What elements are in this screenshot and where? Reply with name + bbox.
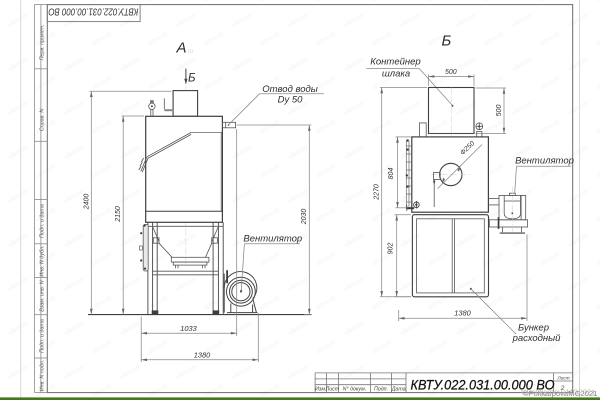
svg-text:Подп. и дата: Подп. и дата [40,319,46,353]
svg-text:Вентилятор: Вентилятор [243,233,302,244]
svg-text:2030: 2030 [301,209,308,226]
svg-text:1380: 1380 [454,309,471,318]
svg-text:Инв. N дубл.: Инв. N дубл. [40,245,46,276]
svg-text:Перв. примен.: Перв. примен. [40,25,46,61]
svg-text:Б: Б [188,73,196,85]
svg-text:1033: 1033 [180,324,197,333]
svg-text:2400: 2400 [83,194,90,211]
svg-text:2270: 2270 [373,184,380,201]
svg-text:КВТУ.022.031.00.000 ВО: КВТУ.022.031.00.000 ВО [48,6,138,17]
svg-text:(1): (1) [188,49,194,54]
svg-text:Справ. N: Справ. N [40,109,46,132]
svg-text:Dy 50: Dy 50 [278,94,304,105]
svg-text:500: 500 [496,105,503,117]
svg-text:Дата: Дата [391,387,406,393]
svg-text:Вентилятор: Вентилятор [515,156,574,167]
svg-text:шлака: шлака [382,68,410,79]
svg-text:1380: 1380 [194,351,211,360]
svg-text:Контейнер: Контейнер [370,57,420,68]
svg-text:Бункер: Бункер [518,323,549,334]
svg-text:Подп. и дата: Подп. и дата [40,204,46,238]
svg-text:2150: 2150 [115,206,122,223]
svg-text:А: А [176,40,187,57]
svg-text:N° докум.: N° докум. [343,387,367,393]
svg-text:Б: Б [442,33,452,50]
svg-text:Лист: Лист [556,376,569,382]
svg-text:Лист: Лист [325,387,340,393]
svg-text:Инв. N подл.: Инв. N подл. [40,360,46,392]
svg-text:©PolikarpovaMG2021: ©PolikarpovaMG2021 [521,388,595,397]
svg-text:804: 804 [388,168,395,180]
svg-text:902: 902 [387,243,394,255]
svg-text:расходный: расходный [512,333,562,344]
svg-text:Взам. инв. N: Взам. инв. N [40,280,46,312]
svg-text:Подп.: Подп. [374,387,388,393]
svg-text:500: 500 [445,69,457,76]
